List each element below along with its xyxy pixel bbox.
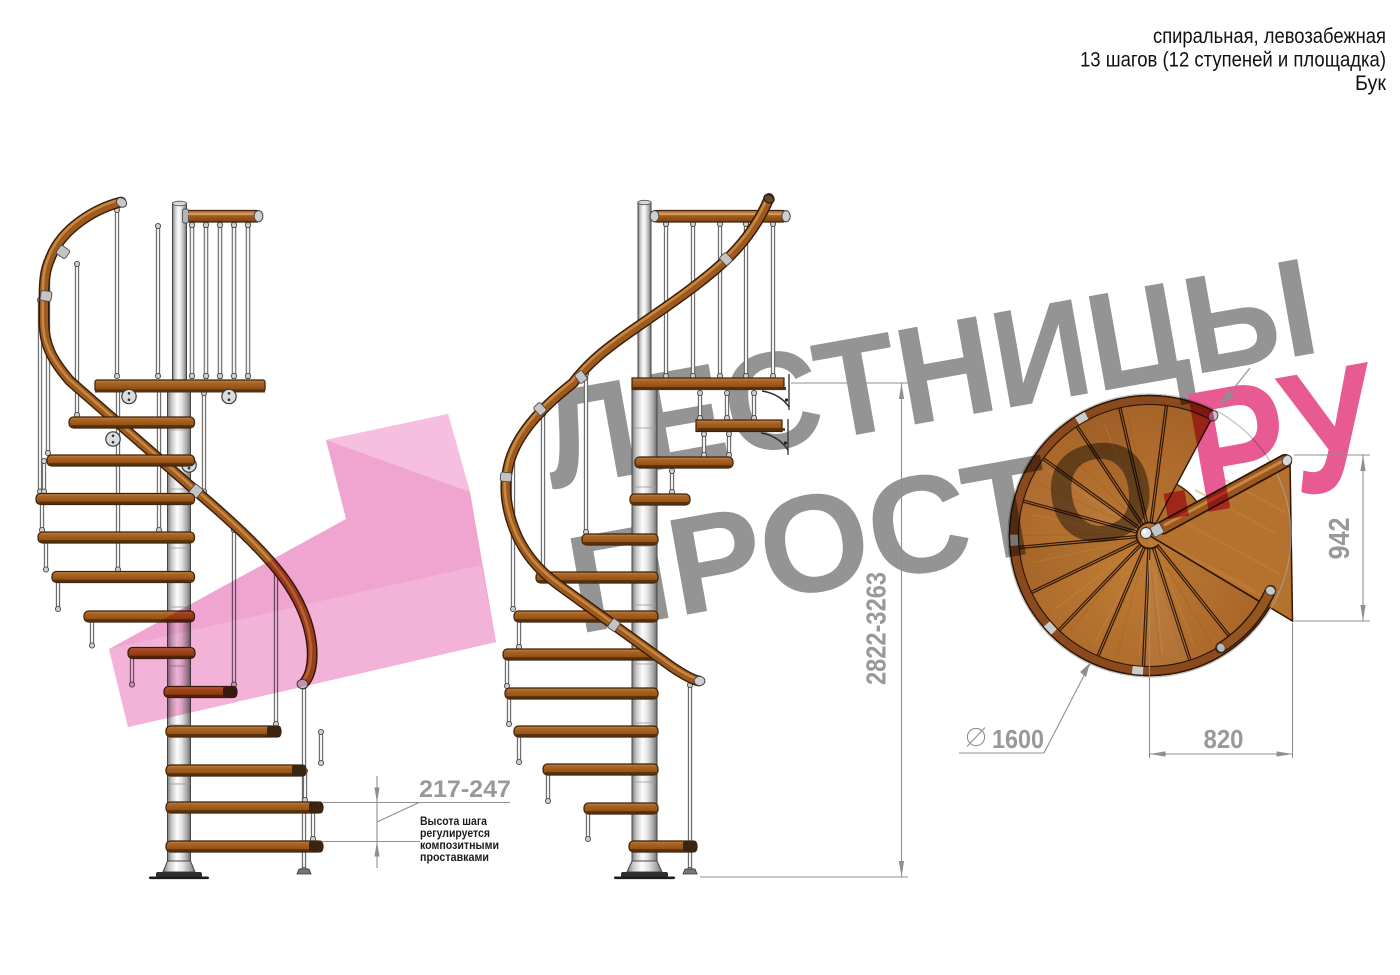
svg-text:2822-3263: 2822-3263 xyxy=(861,572,892,685)
svg-text:1600: 1600 xyxy=(992,724,1044,754)
svg-text:спиральная, левозабежная: спиральная, левозабежная xyxy=(1153,24,1386,48)
svg-text:820: 820 xyxy=(1204,724,1244,754)
svg-text:13 шагов (12 ступеней и площад: 13 шагов (12 ступеней и площадка) xyxy=(1080,48,1386,72)
svg-text:проставками: проставками xyxy=(420,850,489,864)
svg-text:217-247: 217-247 xyxy=(419,776,511,803)
svg-text:Бук: Бук xyxy=(1355,71,1387,95)
svg-text:942: 942 xyxy=(1324,518,1356,560)
